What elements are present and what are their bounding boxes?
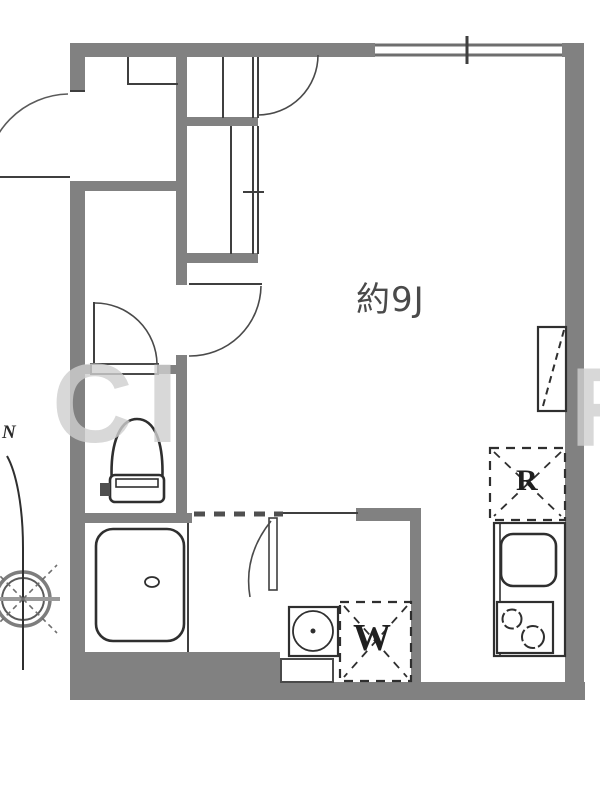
stove-burner-right <box>522 626 544 648</box>
kitchen-sink <box>501 534 556 586</box>
stove <box>497 602 553 653</box>
upper-closet-door-arc <box>258 55 318 115</box>
tall-closet-door-line-b <box>257 126 259 254</box>
entry-door-arc <box>0 94 68 178</box>
watermark-right: R <box>570 352 600 464</box>
window <box>375 36 562 64</box>
upper-closet-divider <box>222 57 224 118</box>
bath-lower-wall-mass <box>70 652 280 700</box>
entry-step <box>70 181 187 191</box>
kitchen-step-threshold <box>280 658 334 683</box>
bath-top-wall <box>70 513 192 523</box>
bathtub <box>96 529 184 641</box>
refrigerator-label: R <box>516 464 538 498</box>
bathtub-drain <box>145 577 159 587</box>
bathroom-right-partition <box>187 523 189 652</box>
kitchen-open-boundary <box>283 512 358 514</box>
compass <box>0 456 60 670</box>
watermark-left: CI <box>52 348 192 460</box>
tall-closet-handle-tick <box>243 191 264 193</box>
shoe-cabinet-left-edge <box>127 57 129 85</box>
wall-mounted-panel <box>538 327 566 411</box>
mainroom-door-panel <box>189 283 262 285</box>
top-wall <box>70 43 375 57</box>
washer-label: W <box>353 616 391 660</box>
entry-opening-top-frame <box>70 90 85 92</box>
shoe-cabinet-bottom-edge <box>127 83 178 85</box>
mainroom-door-arc <box>189 286 261 356</box>
bath-door-arc <box>249 521 271 597</box>
compass-north-needle <box>7 456 23 670</box>
floorplan-canvas: 約9J R W N CI R <box>0 0 600 800</box>
upper-closet-door-line-b <box>257 57 259 118</box>
toilet-flush-handle <box>100 483 110 496</box>
closet-middle-wall <box>187 117 258 126</box>
bath-door-panel <box>269 518 277 590</box>
entry-door-panel <box>0 176 70 178</box>
tall-closet-door-line-a <box>252 126 254 254</box>
closet-bottom-wall <box>187 253 258 263</box>
room-area-label: 約9J <box>356 272 425 321</box>
tall-closet-inner-line <box>230 126 232 254</box>
kitchen-counter <box>494 523 565 656</box>
washbasin <box>289 607 338 656</box>
stove-burner-left <box>503 610 522 629</box>
left-wall-upper <box>70 43 85 92</box>
compass-north-label: N <box>2 422 16 444</box>
upper-closet-door-line-a <box>252 57 254 118</box>
hall-closet-wall <box>176 50 187 285</box>
kitchen-right-wall <box>410 508 421 683</box>
